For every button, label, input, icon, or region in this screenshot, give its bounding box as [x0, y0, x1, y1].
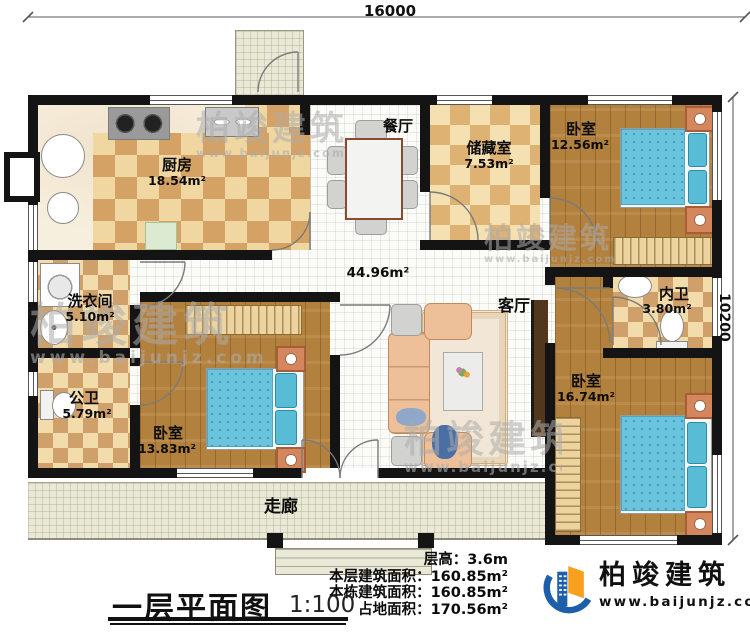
- bathroom-sink: [618, 274, 652, 298]
- room-label-bedroom-bottom-left: 卧室: [153, 426, 183, 441]
- dining-table: [345, 138, 403, 220]
- person-figure: [432, 425, 458, 459]
- room-label-corridor: 走廊: [264, 499, 298, 516]
- wall-segment: [140, 292, 340, 302]
- nightstand: [685, 106, 715, 132]
- room-area-inner-bath: 3.80m²: [642, 303, 691, 316]
- window: [712, 112, 722, 200]
- entry-porch-floor: [235, 30, 304, 97]
- room-area-bedroom-bottom-left: 13.83m²: [138, 443, 196, 456]
- info-value: 160.85m²: [431, 569, 508, 585]
- wall-segment: [420, 240, 550, 250]
- room-label-inner-bath: 内卫: [659, 287, 689, 302]
- nightstand: [276, 346, 306, 372]
- wall-segment: [330, 355, 340, 468]
- dining-chair: [327, 146, 347, 175]
- bed-pillow: [275, 410, 297, 445]
- brand-name: 柏竣建筑: [599, 561, 750, 591]
- bed-pillow: [275, 373, 297, 408]
- wall-post: [418, 533, 434, 548]
- wall-segment: [130, 358, 140, 366]
- kitchen-round-table-small: [47, 192, 79, 224]
- brand-logo-text: 柏竣建筑 www.baijunjz.com: [599, 561, 750, 610]
- room-area-kitchen: 18.54m²: [148, 175, 206, 188]
- wall-segment: [603, 277, 613, 288]
- title-underline-thin: [110, 623, 346, 625]
- room-label-laundry: 洗衣间: [67, 294, 112, 309]
- info-label: 层高：: [424, 552, 468, 568]
- bed: [206, 368, 304, 450]
- brand-logo-icon: [538, 561, 593, 619]
- bed-pillow: [688, 170, 707, 204]
- window: [28, 205, 38, 250]
- nightstand: [685, 206, 715, 234]
- room-area-laundry: 5.10m²: [65, 311, 114, 324]
- info-label: 占地面积：: [358, 602, 431, 618]
- coffee-table: [443, 352, 483, 411]
- info-label: 本层建筑面积：: [329, 569, 431, 585]
- wall-segment: [603, 348, 712, 358]
- room-label-bedroom-top-right: 卧室: [566, 122, 596, 137]
- brand-logo: 柏竣建筑 www.baijunjz.com: [538, 561, 750, 619]
- window: [177, 468, 253, 478]
- wall-segment: [540, 95, 550, 198]
- info-value: 170.56m²: [431, 602, 508, 618]
- bed-mattress: [621, 416, 685, 511]
- bed-pillow: [688, 133, 707, 167]
- window: [28, 262, 38, 302]
- kitchen-sink: [205, 107, 259, 137]
- wardrobe: [613, 237, 714, 265]
- room-label-living: 客厅: [498, 298, 530, 314]
- nightstand: [685, 511, 715, 537]
- window: [588, 95, 672, 105]
- wall-nook: [4, 152, 40, 202]
- stove-cooktop: [108, 107, 170, 140]
- sofa-armchair: [424, 303, 472, 340]
- wall-segment: [38, 250, 272, 260]
- room-area-storage: 7.53m²: [464, 158, 513, 171]
- room-label-public-bath: 公卫: [69, 391, 99, 406]
- wall-segment: [130, 405, 140, 468]
- bed: [620, 128, 710, 208]
- side-table: [391, 304, 422, 336]
- info-line-floor-area: 本层建筑面积：160.85m²: [300, 569, 508, 586]
- room-area-public-bath: 5.79m²: [62, 408, 111, 421]
- info-line-floor-height: 层高：3.6m: [300, 552, 508, 569]
- wall-segment: [545, 277, 555, 285]
- room-area-bedroom-top-right: 12.56m²: [551, 139, 609, 152]
- room-label-dining: 餐厅: [383, 119, 413, 134]
- bed: [620, 415, 712, 514]
- wall-segment: [300, 105, 310, 135]
- room-area-bedroom-bottom-right: 16.74m²: [557, 391, 615, 404]
- bed-mattress: [621, 129, 685, 205]
- window: [437, 95, 492, 105]
- bed-pillow: [687, 466, 707, 508]
- bed-pillow: [687, 422, 707, 464]
- person-figure: [396, 408, 426, 426]
- window: [712, 455, 722, 533]
- wall-post: [267, 533, 283, 548]
- wall-segment: [378, 468, 555, 478]
- wardrobe: [555, 417, 581, 532]
- info-value: 3.6m: [467, 552, 508, 568]
- room-label-storage: 储藏室: [466, 141, 511, 156]
- dining-chair: [327, 180, 347, 209]
- floor-plan-canvas: 16000 10200: [0, 0, 750, 632]
- wall-segment: [545, 343, 555, 535]
- wall-segment: [420, 105, 430, 192]
- bed-mattress: [207, 369, 273, 447]
- wall-segment: [38, 348, 130, 358]
- dimension-right-label: 10200: [716, 293, 732, 363]
- wardrobe: [185, 305, 302, 335]
- title-underline-thick: [108, 617, 348, 621]
- side-table: [391, 436, 422, 466]
- nightstand: [685, 393, 715, 419]
- brand-url: www.baijunjz.com: [599, 594, 750, 610]
- kitchen-floor-checker: [93, 133, 310, 250]
- wall-segment: [28, 468, 302, 478]
- room-label-kitchen: 厨房: [162, 158, 192, 173]
- window: [150, 95, 232, 105]
- dimension-top-label: 16000: [355, 2, 425, 20]
- kitchen-cabinet: [145, 222, 177, 250]
- info-value: 160.85m²: [431, 585, 508, 601]
- wall-segment: [545, 267, 712, 277]
- room-label-bedroom-bottom-right: 卧室: [571, 374, 601, 389]
- laundry-basin: [40, 310, 68, 345]
- wall-segment: [130, 305, 140, 348]
- storage-floor: [430, 105, 540, 240]
- plan-scale: 1:100: [289, 592, 355, 618]
- kitchen-round-table-large: [41, 134, 85, 178]
- window: [580, 535, 677, 545]
- window: [28, 372, 38, 396]
- room-area-living: 44.96m²: [347, 267, 410, 281]
